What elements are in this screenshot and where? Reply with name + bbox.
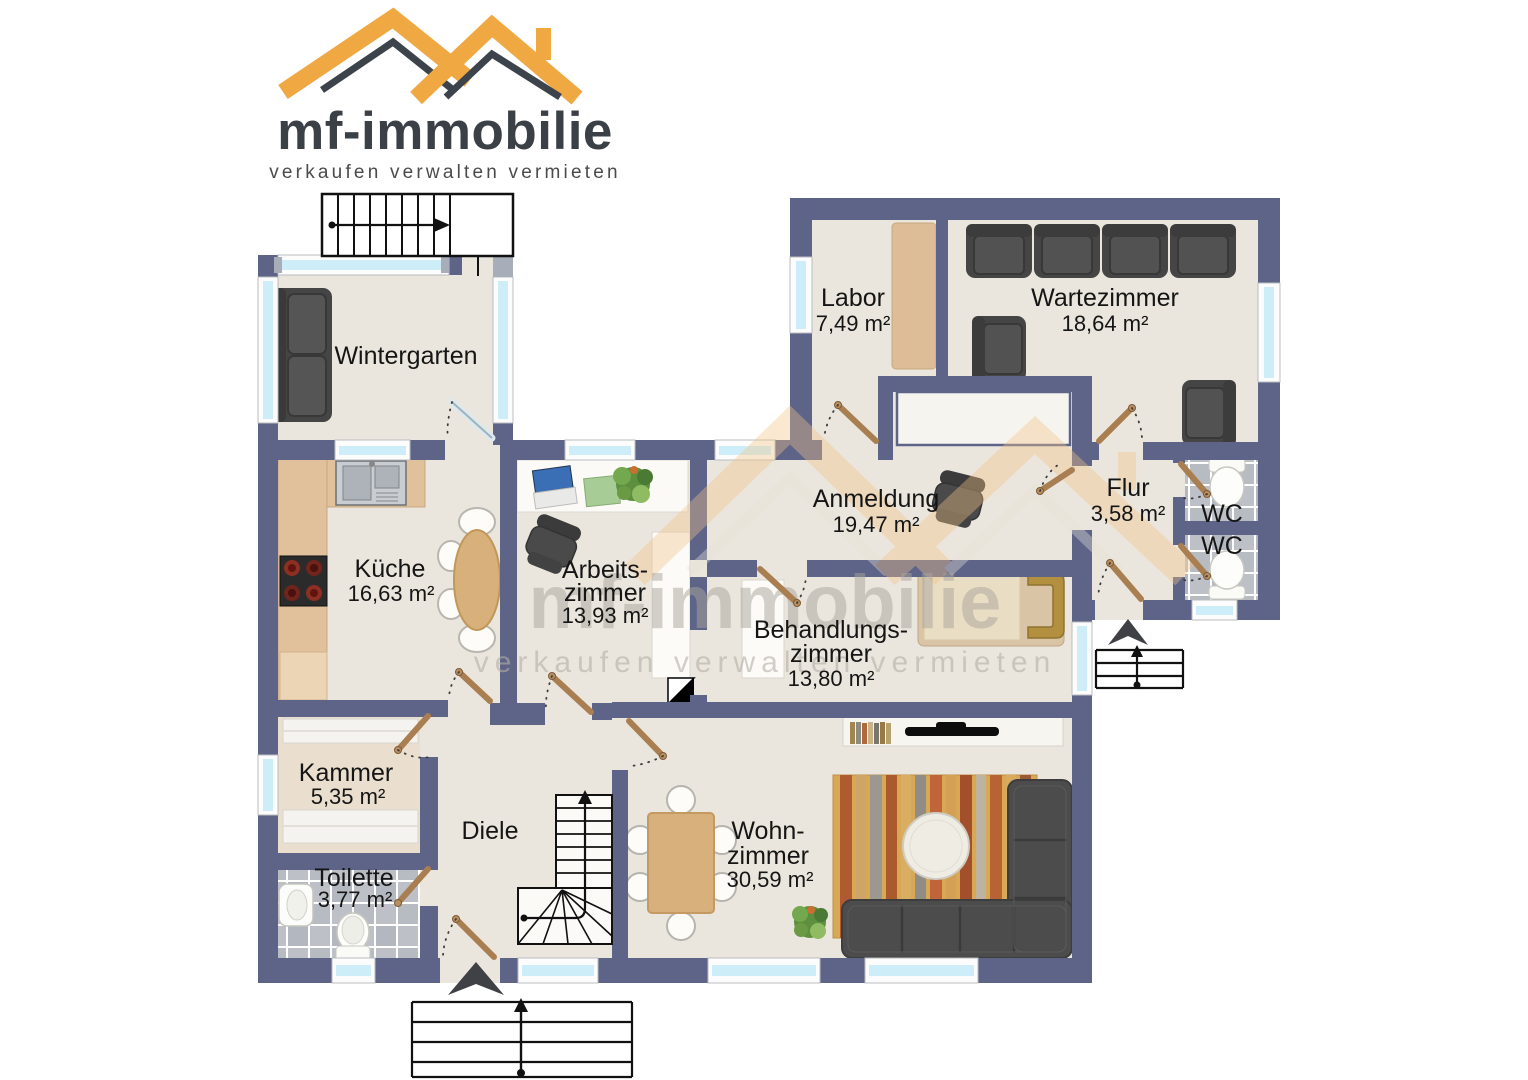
- room-area-flur: 3,58 m²: [1091, 501, 1166, 526]
- sideboard: [843, 717, 1063, 746]
- window: [335, 440, 410, 460]
- exterior-stairs-top: [322, 194, 513, 256]
- waiting-chair: [966, 224, 1032, 278]
- room-label-behandlungszimmer-2: zimmer: [790, 640, 872, 668]
- room-area-behandlungszimmer: 13,80 m²: [788, 666, 875, 691]
- waiting-chair: [1102, 224, 1168, 278]
- kitchen-cabinet: [280, 652, 327, 700]
- living-plant: [792, 906, 828, 939]
- room-label-wartezimmer: Wartezimmer: [1031, 284, 1179, 312]
- logo-title: mf-immobilie: [277, 102, 613, 161]
- company-logo: mf-immobilie verkaufen verwalten vermiet…: [269, 18, 621, 183]
- room-label-wintergarten: Wintergarten: [334, 342, 477, 370]
- watermark-tagline: verkaufen verwalten vermieten: [474, 646, 1057, 679]
- room-label-diele: Diele: [462, 817, 519, 845]
- room-label-flur: Flur: [1106, 474, 1149, 502]
- floorplan-canvas: mf-immobilie verkaufen verwalten vermiet…: [0, 0, 1528, 1080]
- window: [865, 958, 978, 983]
- window: [258, 755, 278, 815]
- room-area-anmeldung: 19,47 m²: [833, 512, 920, 537]
- room-area-wartezimmer: 18,64 m²: [1062, 311, 1149, 336]
- room-area-arbeitszimmer: 13,93 m²: [562, 603, 649, 628]
- office-plant: [613, 466, 653, 503]
- room-label-wohnzimmer-2: zimmer: [727, 842, 809, 870]
- window: [1192, 600, 1237, 620]
- room-area-kammer: 5,35 m²: [311, 784, 386, 809]
- office-desk: [517, 460, 688, 512]
- window: [1072, 622, 1092, 695]
- room-label-wc1: WC: [1201, 500, 1243, 528]
- exterior-stairs-right: [1096, 619, 1183, 689]
- waiting-chair: [1034, 224, 1100, 278]
- labor-counter: [892, 223, 936, 369]
- kitchen-cooktop: [280, 556, 327, 606]
- room-area-labor: 7,49 m²: [816, 311, 891, 336]
- window: [332, 958, 375, 983]
- room-label-anmeldung: Anmeldung: [813, 485, 939, 513]
- dining-table: [648, 813, 714, 913]
- side-entrance-arrow-icon: [1108, 619, 1148, 645]
- window: [708, 958, 820, 983]
- toilette-sink: [279, 884, 313, 926]
- waiting-chair: [1170, 224, 1236, 278]
- room-label-kammer: Kammer: [299, 759, 393, 787]
- room-area-toilette: 3,77 m²: [318, 887, 393, 912]
- coffee-table: [903, 813, 969, 879]
- books-icon: [850, 722, 891, 744]
- logo-tagline: verkaufen verwalten vermieten: [269, 162, 621, 183]
- window: [790, 257, 812, 333]
- toilette-wc: [336, 913, 370, 961]
- room-area-wohnzimmer: 30,59 m²: [727, 867, 814, 892]
- room-area-kueche: 16,63 m²: [348, 581, 435, 606]
- room-label-labor: Labor: [821, 284, 885, 312]
- window: [1258, 283, 1280, 382]
- window: [565, 440, 635, 460]
- wintergarten-sofa: [272, 288, 332, 422]
- room-label-wc2: WC: [1201, 532, 1243, 560]
- window: [518, 958, 598, 983]
- room-label-wohnzimmer-1: Wohn-: [731, 817, 804, 845]
- waiting-chair: [1182, 380, 1236, 446]
- waiting-chair: [972, 316, 1026, 382]
- kitchen-sink: [336, 461, 406, 505]
- floorplan-page: mf-immobilie verkaufen verwalten vermiet…: [0, 0, 1528, 1080]
- room-label-kueche: Küche: [355, 555, 426, 583]
